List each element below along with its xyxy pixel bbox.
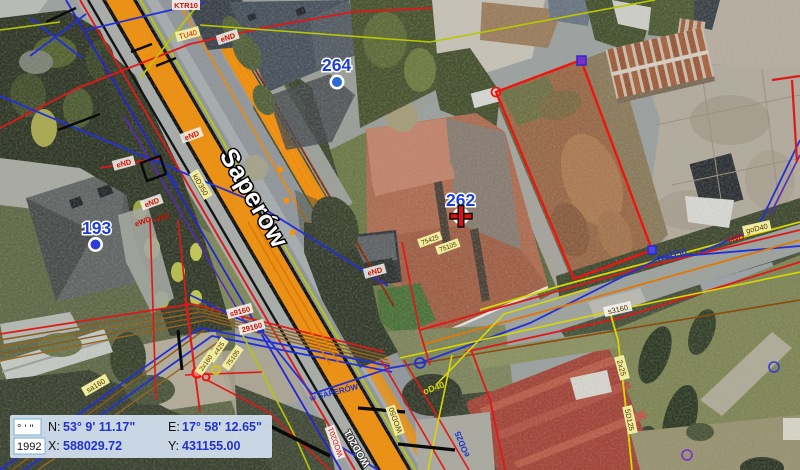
svg-text:264: 264 bbox=[322, 55, 351, 75]
svg-text:193: 193 bbox=[82, 218, 111, 238]
svg-text:N:: N: bbox=[48, 420, 61, 434]
svg-text:Y:: Y: bbox=[168, 439, 179, 453]
svg-text:° ' ": ° ' " bbox=[17, 423, 34, 435]
svg-text:X:: X: bbox=[48, 439, 60, 453]
svg-text:KTR10: KTR10 bbox=[174, 1, 198, 10]
svg-text:53° 9' 11.17": 53° 9' 11.17" bbox=[63, 420, 135, 434]
svg-text:431155.00: 431155.00 bbox=[182, 439, 240, 453]
svg-text:E:: E: bbox=[168, 420, 180, 434]
svg-text:17° 58' 12.65": 17° 58' 12.65" bbox=[182, 420, 262, 434]
svg-text:1992: 1992 bbox=[17, 441, 41, 453]
svg-text:588029.72: 588029.72 bbox=[63, 439, 122, 453]
